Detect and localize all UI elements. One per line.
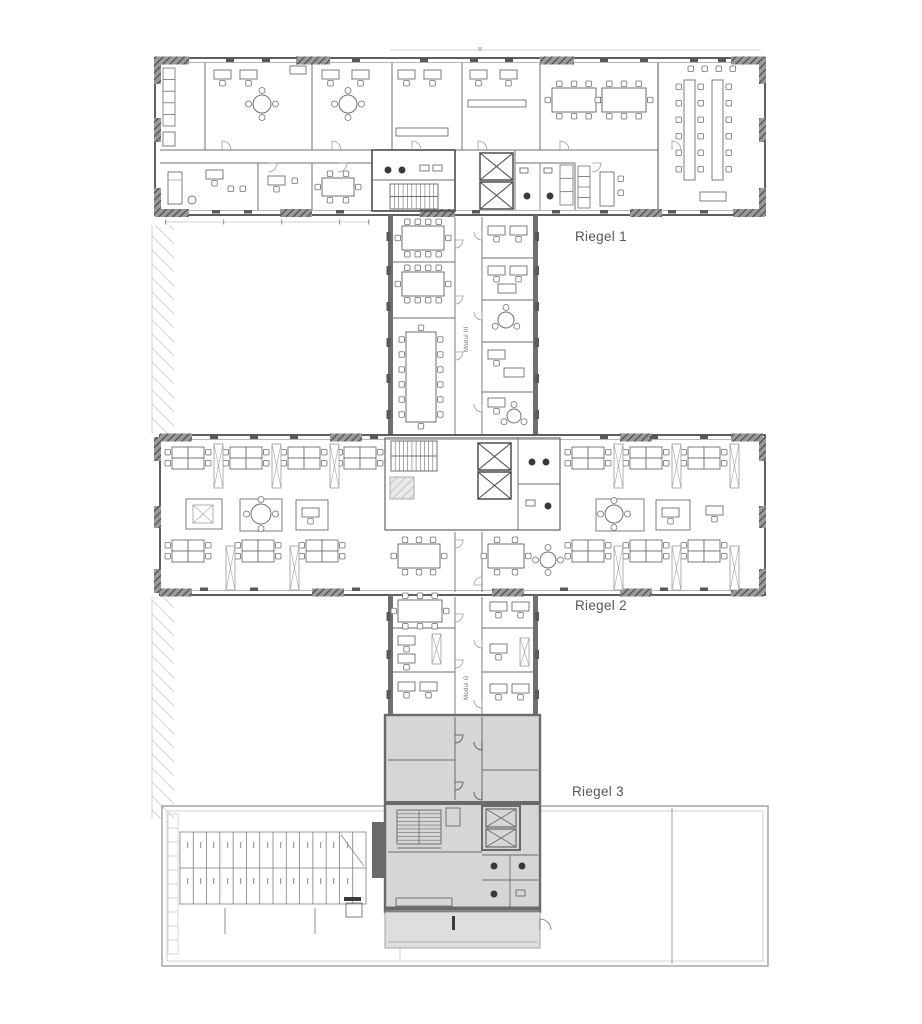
stall-marks [333, 842, 334, 848]
desk [572, 551, 588, 562]
chair [565, 461, 571, 467]
chair [356, 184, 362, 190]
chair [565, 543, 571, 549]
chair [586, 114, 592, 120]
stall-marks [280, 842, 281, 848]
stall-marks [253, 842, 254, 848]
chair [545, 545, 551, 551]
desk [646, 458, 662, 469]
label-riegel-2: Riegel 2 [575, 598, 627, 613]
chair [426, 693, 432, 699]
door [455, 240, 463, 248]
chair [664, 554, 670, 560]
chair [518, 613, 524, 619]
chair [494, 237, 500, 243]
chair [430, 537, 436, 543]
desk [188, 458, 204, 469]
chair [676, 134, 682, 140]
chair [623, 450, 629, 456]
chair [726, 117, 732, 123]
chair [621, 114, 627, 120]
stall-marks [307, 842, 308, 848]
chair [442, 553, 448, 559]
chair [494, 570, 500, 576]
plan-shape [314, 908, 316, 934]
desk [306, 540, 322, 551]
chair [276, 543, 282, 549]
desk [630, 447, 646, 458]
window-sills [640, 59, 648, 63]
entrance-strip [385, 912, 540, 948]
meeting-table [398, 544, 440, 568]
stall-marks [333, 878, 334, 884]
plan-shape [759, 506, 766, 528]
chair [399, 352, 405, 358]
plan-shape [312, 589, 344, 597]
wall-pillar [160, 434, 192, 442]
chair [281, 461, 287, 467]
chair [598, 511, 604, 517]
window-sills [535, 612, 539, 621]
chair [281, 450, 287, 456]
window-sills [200, 588, 208, 592]
window-sills [690, 59, 698, 63]
chair [436, 298, 442, 304]
table [488, 544, 524, 568]
chair [235, 554, 241, 560]
chair [246, 81, 252, 87]
chair [358, 81, 364, 87]
label-modul-iii: Modul III [464, 326, 470, 352]
chair [430, 81, 436, 87]
chair [259, 88, 265, 94]
window-sills [600, 210, 608, 214]
window-sills [290, 436, 298, 440]
chair [438, 412, 444, 418]
desk [172, 447, 188, 458]
window-sills [387, 650, 391, 659]
chair [436, 265, 442, 271]
chair [676, 150, 682, 156]
window-sills [650, 436, 658, 440]
chair [416, 570, 422, 576]
chair [664, 450, 670, 456]
window-sills [387, 302, 391, 311]
chair [606, 461, 612, 467]
chair [698, 150, 704, 156]
stall-marks [293, 842, 294, 848]
chair [512, 570, 518, 576]
chair [726, 150, 732, 156]
survey-mark [478, 47, 482, 51]
chair [432, 624, 438, 630]
stall-marks [347, 878, 348, 884]
window-sills [535, 338, 539, 347]
plan-shape [330, 434, 362, 442]
desk [304, 447, 320, 458]
chair [206, 461, 212, 467]
chair [359, 101, 365, 107]
wc-fixture [519, 863, 525, 869]
desk [188, 540, 204, 551]
window-sills [336, 210, 344, 214]
chair [676, 84, 682, 90]
stall-marks [200, 842, 201, 848]
meeting-table [402, 226, 444, 250]
desk [360, 458, 376, 469]
chair [722, 450, 728, 456]
desk [704, 458, 720, 469]
chair [438, 352, 444, 358]
chair [399, 337, 405, 343]
chair [165, 450, 171, 456]
chair [681, 543, 687, 549]
chair [511, 402, 517, 408]
desk [288, 458, 304, 469]
chair [664, 543, 670, 549]
round-table [540, 552, 556, 568]
chair [415, 219, 421, 225]
meeting-table [402, 272, 444, 296]
plan-shape [492, 589, 524, 597]
desk [572, 447, 588, 458]
plan-shape [154, 188, 161, 214]
window-sills [387, 410, 391, 419]
desk [322, 551, 338, 562]
slope-hatch-lower [152, 597, 174, 819]
chair [399, 367, 405, 373]
window-sills [226, 59, 234, 63]
round-table [605, 505, 623, 523]
desk [646, 551, 662, 562]
chair [481, 553, 487, 559]
desk [704, 551, 720, 562]
desk [470, 70, 487, 79]
stall-marks [213, 842, 214, 848]
chair [607, 81, 613, 87]
chair [438, 337, 444, 343]
chair [521, 419, 527, 425]
chair [405, 265, 411, 271]
chair [506, 81, 512, 87]
chair [258, 497, 264, 503]
desk [630, 551, 646, 562]
chair [165, 554, 171, 560]
stall-marks [347, 842, 348, 848]
chair [240, 186, 246, 192]
plan-shape [420, 209, 455, 217]
desk [512, 602, 529, 611]
window-sills [600, 436, 608, 440]
plan-shape [154, 569, 161, 593]
desk [488, 398, 505, 407]
chair [399, 397, 405, 403]
window-sills [387, 374, 391, 383]
chair [712, 517, 718, 523]
chair [636, 114, 642, 120]
stall-marks [293, 878, 294, 884]
chair [571, 81, 577, 87]
plan-shape [154, 437, 161, 461]
chair [726, 84, 732, 90]
desk [488, 350, 505, 359]
chair [623, 543, 629, 549]
round-table [253, 95, 271, 113]
wc-fixture [385, 167, 391, 173]
chair [533, 557, 539, 563]
chair [623, 461, 629, 467]
chair [299, 543, 305, 549]
chair [403, 593, 409, 599]
chair [586, 81, 592, 87]
chair [418, 325, 424, 331]
desk [288, 447, 304, 458]
chair [698, 134, 704, 140]
chair [492, 323, 498, 329]
stall-marks [307, 878, 308, 884]
stall-marks [187, 878, 188, 884]
desk [688, 551, 704, 562]
stall-marks [267, 842, 268, 848]
wc-fixture [491, 863, 497, 869]
chair [722, 461, 728, 467]
chair [391, 553, 397, 559]
desk [512, 684, 529, 693]
chair [494, 409, 500, 415]
chair [378, 461, 384, 467]
desk [322, 70, 339, 79]
desk [398, 682, 415, 691]
desk [306, 551, 322, 562]
chair [681, 450, 687, 456]
stall-marks [280, 878, 281, 884]
chair [595, 97, 601, 103]
window-sills [718, 59, 726, 63]
desk [572, 540, 588, 551]
stall-marks [253, 878, 254, 884]
desk [630, 458, 646, 469]
chair [496, 613, 502, 619]
dimension-ticks [368, 220, 369, 225]
window-sills [387, 266, 391, 275]
window-sills [472, 210, 480, 214]
desk [424, 70, 441, 79]
chair [417, 624, 423, 630]
chair [676, 117, 682, 123]
chair [496, 655, 502, 661]
window-sills [535, 302, 539, 311]
dimension-ticks [339, 220, 340, 225]
desk [500, 70, 517, 79]
window-sills [668, 210, 676, 214]
window-sills [535, 650, 539, 659]
wc-fixture [399, 167, 405, 173]
chair [512, 537, 518, 543]
chair [621, 81, 627, 87]
chair [404, 647, 410, 653]
meeting-table [398, 600, 442, 622]
chair [611, 525, 617, 531]
window-sills [660, 588, 668, 592]
desk [360, 447, 376, 458]
desk [588, 540, 604, 551]
chair [676, 167, 682, 173]
plan-shape [154, 118, 161, 142]
chair [494, 277, 500, 283]
door [474, 232, 482, 240]
chair [730, 66, 736, 72]
desk [214, 70, 231, 79]
desk [488, 266, 505, 275]
chair [292, 178, 298, 184]
chair [273, 101, 279, 107]
desk [510, 226, 527, 235]
plan-shape [759, 58, 766, 84]
round-table [339, 95, 357, 113]
window-sills [352, 588, 360, 592]
plan-shape [759, 437, 766, 461]
chair [494, 361, 500, 367]
desk [242, 540, 258, 551]
door [540, 919, 551, 930]
chair [264, 461, 270, 467]
desk [588, 551, 604, 562]
chair [444, 608, 450, 614]
plan-shape [160, 589, 192, 597]
meeting-table [602, 88, 646, 112]
desk [188, 447, 204, 458]
chair [438, 382, 444, 388]
door [474, 700, 482, 708]
chair [557, 114, 563, 120]
plan-shape [504, 368, 524, 377]
chair [340, 543, 346, 549]
wc-fixture [545, 503, 551, 509]
door [474, 404, 482, 412]
chair [676, 101, 682, 107]
chair [526, 553, 532, 559]
desk [242, 551, 258, 562]
chair [403, 624, 409, 630]
chair [340, 554, 346, 560]
chair [345, 115, 351, 121]
desk [352, 70, 369, 79]
chair [258, 526, 264, 532]
chair [432, 593, 438, 599]
window-sills [250, 588, 258, 592]
window-sills [420, 59, 428, 63]
desk [490, 602, 507, 611]
window-sills [700, 588, 708, 592]
chair [328, 81, 334, 87]
chair [668, 519, 674, 525]
chair [220, 81, 226, 87]
window-sills [535, 374, 539, 383]
plan-shape [452, 916, 455, 930]
chair [399, 382, 405, 388]
chair [259, 115, 265, 121]
window-sills [210, 436, 218, 440]
chair [516, 237, 522, 243]
chair [378, 450, 384, 456]
chair [308, 519, 314, 525]
wall-pillar [540, 57, 574, 65]
meeting-table [552, 88, 596, 112]
desk [588, 447, 604, 458]
desk [510, 266, 527, 275]
plan-shape [731, 434, 763, 442]
chair [438, 397, 444, 403]
chair [402, 537, 408, 543]
chair [565, 554, 571, 560]
wc-fixture [491, 891, 497, 897]
desk [588, 458, 604, 469]
chair [518, 695, 524, 701]
chair [223, 450, 229, 456]
chair [206, 543, 212, 549]
window-sills [470, 59, 478, 63]
window-sills [535, 232, 539, 241]
chair [165, 461, 171, 467]
plan-shape [759, 569, 766, 593]
plan-shape [630, 209, 662, 217]
desk [704, 540, 720, 551]
desk [240, 70, 257, 79]
chair [165, 543, 171, 549]
window-sills [535, 410, 539, 419]
door [474, 640, 482, 648]
desk [704, 447, 720, 458]
chair [417, 593, 423, 599]
chair [244, 511, 250, 517]
desk [246, 447, 262, 458]
chair [405, 252, 411, 258]
chair [404, 693, 410, 699]
chair [405, 219, 411, 225]
window-sills [212, 210, 220, 214]
stall-marks [240, 878, 241, 884]
desk [398, 636, 415, 645]
wc-fixture [543, 459, 549, 465]
chair [327, 171, 333, 177]
parking-mark [344, 897, 361, 901]
window-sills [700, 210, 708, 214]
desk [646, 540, 662, 551]
chair [436, 252, 442, 258]
stall-marks [320, 842, 321, 848]
chair [426, 219, 432, 225]
wc-fixture [529, 459, 535, 465]
chair [223, 461, 229, 467]
chair [206, 450, 212, 456]
chair [565, 450, 571, 456]
chair [698, 167, 704, 173]
chair [276, 554, 282, 560]
desk [188, 551, 204, 562]
plan-shape [346, 903, 362, 917]
chair [391, 608, 397, 614]
chair [343, 171, 349, 177]
chair [618, 190, 624, 196]
desk [206, 170, 223, 179]
chair [557, 81, 563, 87]
chair [246, 101, 252, 107]
chair [698, 84, 704, 90]
plan-shape [154, 506, 161, 528]
stall-marks [320, 878, 321, 884]
desk [398, 654, 415, 663]
chair [415, 298, 421, 304]
